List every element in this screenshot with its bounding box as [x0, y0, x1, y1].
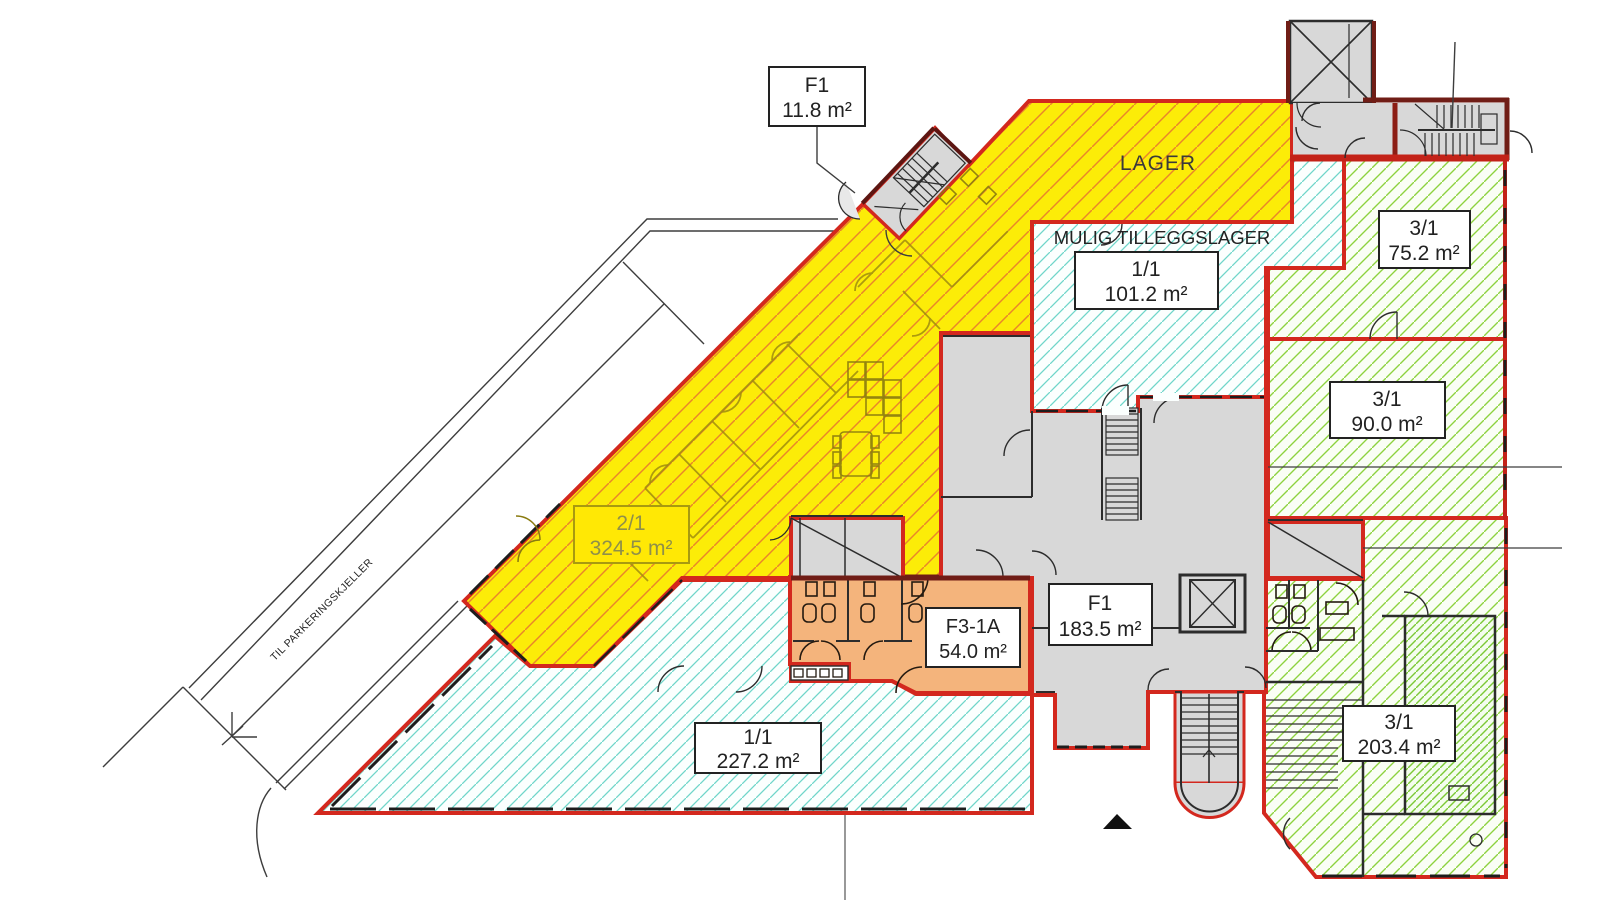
- svg-text:90.0 m²: 90.0 m²: [1351, 413, 1422, 436]
- svg-text:2/1: 2/1: [616, 512, 645, 535]
- svg-text:3/1: 3/1: [1372, 388, 1401, 411]
- svg-text:1/1: 1/1: [743, 726, 772, 749]
- svg-text:203.4 m²: 203.4 m²: [1358, 736, 1441, 759]
- svg-text:F1: F1: [1088, 592, 1113, 615]
- svg-text:324.5 m²: 324.5 m²: [590, 537, 673, 560]
- svg-text:F3-1A: F3-1A: [946, 616, 1001, 638]
- svg-text:3/1: 3/1: [1409, 217, 1438, 240]
- svg-text:F1: F1: [805, 74, 830, 97]
- svg-text:MULIG TILLEGGSLAGER: MULIG TILLEGGSLAGER: [1054, 227, 1271, 248]
- svg-text:183.5 m²: 183.5 m²: [1059, 618, 1142, 641]
- svg-text:101.2 m²: 101.2 m²: [1105, 283, 1188, 306]
- svg-text:11.8 m²: 11.8 m²: [782, 99, 852, 122]
- svg-text:1/1: 1/1: [1131, 258, 1160, 281]
- svg-text:LAGER: LAGER: [1120, 152, 1196, 175]
- svg-text:3/1: 3/1: [1384, 711, 1413, 734]
- svg-text:54.0 m²: 54.0 m²: [939, 641, 1007, 663]
- svg-text:75.2 m²: 75.2 m²: [1388, 242, 1459, 265]
- svg-text:227.2 m²: 227.2 m²: [717, 750, 800, 773]
